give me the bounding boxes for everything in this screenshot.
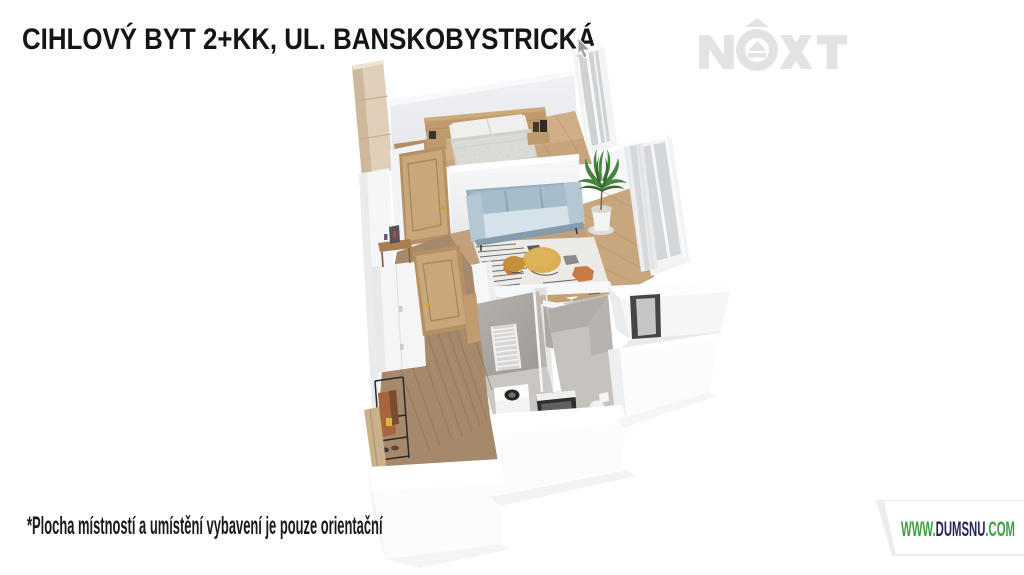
- svg-text:WWW.DUMSNU.COM: WWW.DUMSNU.COM: [901, 518, 1015, 541]
